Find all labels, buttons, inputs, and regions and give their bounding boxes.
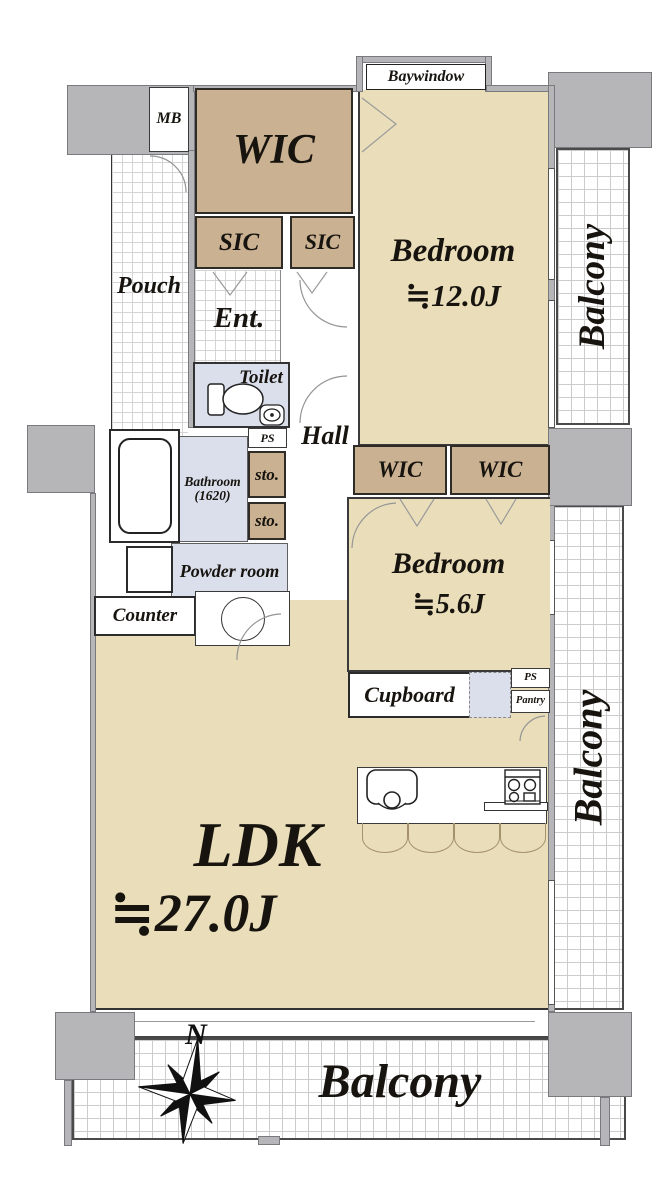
wall-bottom-left-stem (64, 1080, 72, 1146)
label-wic-main: WIC (195, 88, 353, 214)
label-hall: Hall (290, 421, 360, 451)
kitchen-scallop (362, 823, 408, 853)
ldk-window-mullion (135, 1021, 535, 1022)
window-right-2 (548, 300, 555, 428)
kitchen-scallop (500, 823, 546, 853)
window-right-1 (548, 168, 555, 280)
washer-space (126, 546, 173, 593)
wall-bottom-right-block (548, 1012, 632, 1097)
label-bathroom: Bathroom (1620) (177, 436, 248, 542)
kitchen-counter (357, 767, 547, 824)
wall-bottom-left-block (55, 1012, 135, 1080)
label-balcony-bottom: Balcony (285, 1052, 515, 1112)
cupboard-dashed-box (469, 672, 511, 718)
wall-top-strip-right (486, 85, 552, 92)
label-ldk-name: LDK (160, 810, 355, 880)
label-bedroom-second-size: ≒5.6J (347, 585, 550, 625)
wall-baywindow-top (356, 56, 492, 63)
kitchen-scallop (408, 823, 454, 853)
label-toilet: Toilet (232, 366, 290, 390)
label-mb: MB (149, 87, 189, 152)
label-bathroom-size: (1620) (195, 489, 231, 503)
wall-balcony-bottom-tab (258, 1136, 280, 1145)
wall-baywindow-left (356, 56, 363, 92)
wall-right-mid-block (548, 428, 632, 506)
floor-plan-canvas: { "rooms": { "wic_main": {"label": "WIC"… (0, 0, 658, 1200)
label-baywindow: Baywindow (366, 64, 486, 90)
label-ps-top: PS (248, 428, 287, 448)
label-ps-bottom: PS (511, 668, 550, 688)
wall-left-mid-block (27, 425, 95, 493)
bathtub-inner (118, 438, 172, 534)
label-counter: Counter (94, 596, 196, 636)
label-cupboard: Cupboard (348, 672, 471, 718)
kitchen-scallop (454, 823, 500, 853)
label-balcony-right-top: Balcony (556, 148, 630, 425)
label-balcony-right-top-text: Balcony (572, 224, 615, 349)
wall-top-right-block (548, 72, 652, 148)
label-sic-right: SIC (290, 216, 355, 269)
label-ldk-size: ≒27.0J (88, 882, 298, 944)
label-sic-left: SIC (195, 216, 283, 269)
label-bedroom-main-name: Bedroom (358, 228, 548, 274)
label-balcony-right-bottom-text: Balcony (565, 690, 612, 826)
kitchen-counter-return (484, 802, 548, 811)
label-ent: Ent. (197, 296, 281, 340)
label-bathroom-name: Bathroom (184, 475, 240, 489)
label-wic-small-left: WIC (353, 445, 447, 495)
label-pouch: Pouch (108, 270, 190, 302)
label-bedroom-second-name: Bedroom (347, 543, 550, 585)
label-bedroom-main-size: ≒12.0J (358, 274, 548, 318)
label-balcony-right-bottom: Balcony (552, 505, 624, 1010)
label-powder-room: Powder room (171, 543, 288, 600)
ldk-window-band (95, 1008, 548, 1038)
label-pantry: Pantry (511, 690, 550, 713)
wall-bottom-right-stem (600, 1097, 610, 1146)
washbasin-icon (221, 597, 265, 641)
label-wic-small-right: WIC (450, 445, 550, 495)
label-sto-top: sto. (248, 451, 286, 498)
label-sto-bottom: sto. (248, 502, 286, 540)
